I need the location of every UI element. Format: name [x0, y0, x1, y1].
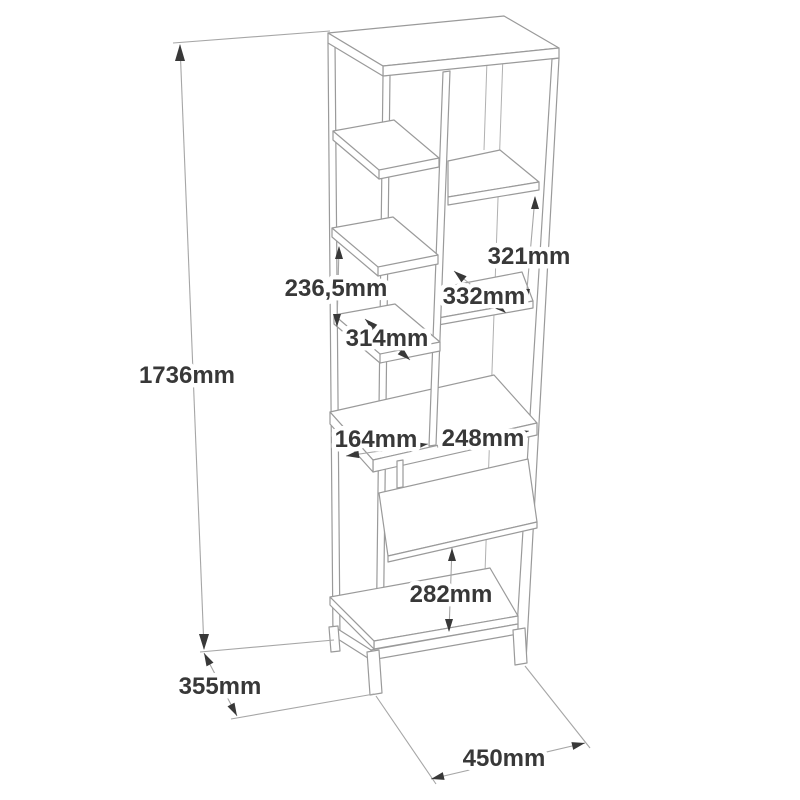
- left-shelf-2: [332, 217, 438, 276]
- label-total-depth: 355mm: [179, 673, 262, 700]
- label-left-shelf-depth: 314mm: [346, 325, 429, 352]
- lower-small-divider: [397, 460, 403, 488]
- front-left-leg: [367, 650, 382, 695]
- label-total-height: 1736mm: [139, 362, 235, 389]
- bookcase-drawing: 1736mm 236,5mm 321mm 332mm 314mm 164mm 2…: [0, 0, 800, 800]
- width-arrow-right: [571, 742, 585, 750]
- label-left-shelf-gap: 236,5mm: [285, 275, 388, 302]
- label-right-upper-height: 321mm: [488, 243, 571, 270]
- right-shelf-back-corner-edge: [484, 60, 487, 150]
- right-side-panel: [515, 58, 559, 661]
- lower-cabinet: [330, 459, 537, 660]
- front-right-leg: [513, 628, 527, 665]
- width-arrow-left: [431, 772, 445, 780]
- height-arrow-up: [175, 44, 185, 61]
- label-lower-opening-height: 282mm: [410, 581, 493, 608]
- height-dim-line: [180, 45, 204, 649]
- label-left-opening-width: 164mm: [335, 426, 418, 453]
- depth-arrow-back: [204, 653, 214, 666]
- height-arrow-down: [199, 634, 209, 650]
- height-top-extension: [173, 31, 330, 43]
- width-right-extension: [525, 666, 590, 748]
- right-upper-arrow-up: [531, 196, 539, 209]
- left-shelf-1: [333, 120, 439, 179]
- top-panel: [328, 16, 559, 76]
- depth-arrow-front: [228, 703, 238, 716]
- height-bottom-extension: [200, 640, 334, 652]
- width-left-extension: [376, 696, 436, 784]
- label-total-width: 450mm: [463, 745, 546, 772]
- dimension-drawing-canvas: 1736mm 236,5mm 321mm 332mm 314mm 164mm 2…: [0, 0, 800, 800]
- back-left-leg: [329, 626, 340, 652]
- right-depth-arrow-back: [454, 271, 467, 282]
- lower-height-arrow-up: [448, 548, 456, 561]
- label-right-opening-width: 248mm: [442, 425, 525, 452]
- label-right-shelf-depth: 332mm: [443, 283, 526, 310]
